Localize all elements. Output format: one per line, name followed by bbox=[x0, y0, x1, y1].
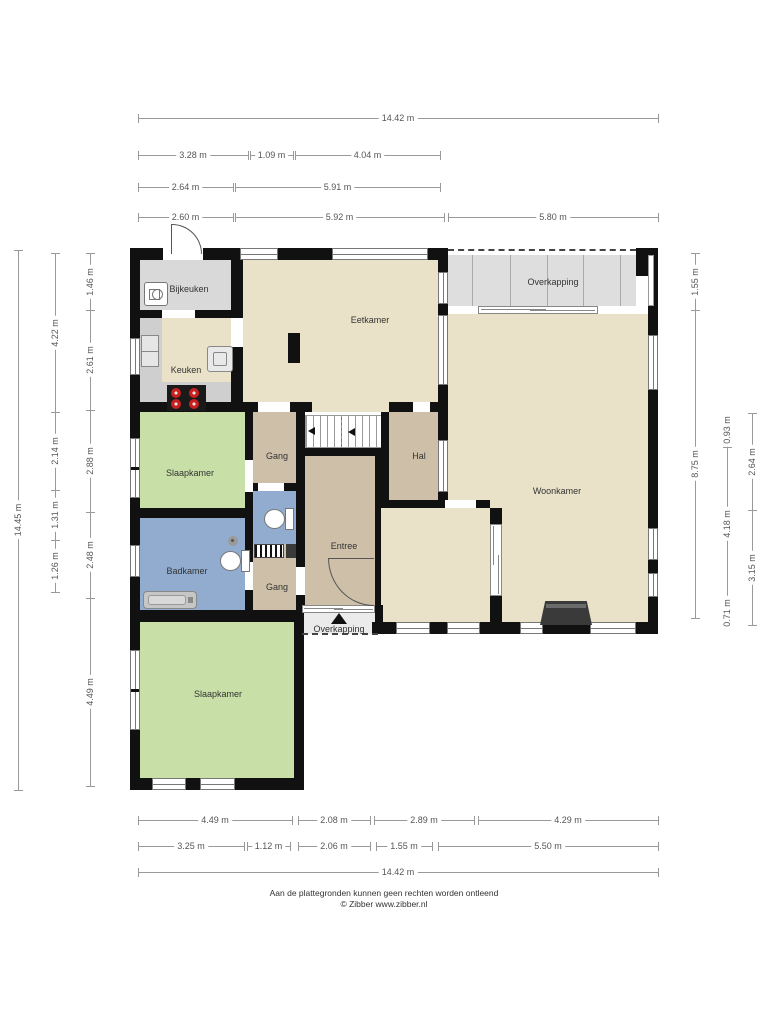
wall bbox=[381, 412, 389, 500]
washer-icon bbox=[144, 282, 168, 306]
dim-tick bbox=[14, 790, 23, 791]
dim-label: 4.22 m bbox=[50, 316, 60, 350]
dim-tick bbox=[298, 842, 299, 851]
dim-label: 1.31 m bbox=[50, 498, 60, 532]
overkapping-schuifpui bbox=[478, 306, 598, 314]
wall bbox=[294, 610, 304, 790]
stove-icon bbox=[167, 385, 206, 411]
room-label-bijkeuken: Bijkeuken bbox=[169, 284, 208, 294]
dim-label: 2.14 m bbox=[50, 434, 60, 468]
window bbox=[130, 338, 140, 375]
dim-label: 0.71 m bbox=[722, 596, 732, 630]
dim-tick bbox=[440, 183, 441, 192]
metersq-icon bbox=[286, 544, 296, 558]
dim-tick bbox=[233, 183, 234, 192]
tri-up-icon bbox=[331, 613, 347, 624]
leaf-icon bbox=[328, 558, 374, 559]
dim-tick bbox=[86, 410, 95, 411]
overkapping-line bbox=[583, 255, 584, 306]
dim-label: 3.25 m bbox=[174, 841, 208, 851]
wall bbox=[636, 248, 658, 276]
dim-tick bbox=[374, 816, 375, 825]
dim-tick bbox=[86, 310, 95, 311]
dim-label: 4.49 m bbox=[85, 675, 95, 709]
dim-tick bbox=[138, 842, 139, 851]
wall bbox=[375, 605, 383, 634]
blackbox-icon bbox=[288, 333, 300, 363]
window bbox=[648, 335, 658, 390]
dim-label: 5.91 m bbox=[321, 182, 355, 192]
dim-tick bbox=[658, 114, 659, 123]
overkapping-line bbox=[620, 255, 621, 306]
window bbox=[648, 528, 658, 560]
dim-label: 1.26 m bbox=[50, 549, 60, 583]
dim-label: 5.80 m bbox=[536, 212, 570, 222]
window bbox=[130, 545, 140, 577]
room-label-gang-onder: Gang bbox=[266, 582, 288, 592]
room-label-overkapping-boven: Overkapping bbox=[527, 277, 578, 287]
dim-tick bbox=[440, 151, 441, 160]
dim-tick bbox=[748, 510, 757, 511]
dim-label: 1.12 m bbox=[252, 841, 286, 851]
window bbox=[152, 778, 186, 790]
door-opening bbox=[413, 402, 430, 412]
window bbox=[590, 622, 636, 634]
dim-tick bbox=[444, 213, 445, 222]
dim-tick bbox=[748, 625, 757, 626]
dim-tick bbox=[370, 816, 371, 825]
dim-tick bbox=[292, 816, 293, 825]
dim-label: 14.42 m bbox=[379, 867, 418, 877]
dim-tick bbox=[235, 213, 236, 222]
dim-tick bbox=[370, 842, 371, 851]
dim-tick bbox=[723, 447, 732, 448]
dim-label: 5.50 m bbox=[531, 841, 565, 851]
room-label-slaapkamer-1: Slaapkamer bbox=[166, 468, 214, 478]
dim-tick bbox=[138, 213, 139, 222]
dim-tick bbox=[247, 842, 248, 851]
window bbox=[520, 622, 543, 634]
dim-tick bbox=[86, 512, 95, 513]
dim-label: 8.75 m bbox=[690, 447, 700, 481]
room-woonkamer-nis bbox=[381, 508, 490, 624]
window bbox=[648, 573, 658, 597]
nis-schuifdeur bbox=[490, 524, 502, 596]
dim-tick bbox=[293, 151, 294, 160]
dim-tick bbox=[438, 842, 439, 851]
dim-tick bbox=[138, 114, 139, 123]
room-gang-boven bbox=[253, 412, 296, 483]
dim-tick bbox=[691, 310, 700, 311]
door-opening bbox=[258, 402, 290, 412]
room-label-eetkamer: Eetkamer bbox=[351, 315, 390, 325]
dim-tick bbox=[478, 816, 479, 825]
dim-tick bbox=[658, 842, 659, 851]
dim-tick bbox=[233, 213, 234, 222]
dim-tick bbox=[748, 413, 757, 414]
window bbox=[200, 778, 235, 790]
fridge-icon bbox=[141, 335, 159, 367]
dim-tick bbox=[295, 151, 296, 160]
dim-tick bbox=[138, 868, 139, 877]
dim-tick bbox=[250, 151, 251, 160]
tri-left-icon bbox=[308, 427, 315, 435]
dim-tick bbox=[658, 213, 659, 222]
dim-label: 0.93 m bbox=[722, 413, 732, 447]
dim-tick bbox=[432, 842, 433, 851]
dim-tick bbox=[138, 183, 139, 192]
dim-label: 2.64 m bbox=[169, 182, 203, 192]
dim-tick bbox=[248, 151, 249, 160]
window bbox=[447, 622, 480, 634]
meter-icon bbox=[254, 544, 284, 558]
dim-tick bbox=[51, 490, 60, 491]
dim-tick bbox=[51, 592, 60, 593]
room-eetkamer bbox=[243, 260, 438, 412]
room-label-slaapkamer-2: Slaapkamer bbox=[194, 689, 242, 699]
dim-label: 1.46 m bbox=[85, 265, 95, 299]
sinkunit-icon bbox=[207, 346, 233, 372]
overkapping-line bbox=[472, 255, 473, 306]
wall bbox=[290, 402, 312, 412]
footer-copyright: © Zibber www.zibber.nl bbox=[0, 899, 768, 909]
wall bbox=[490, 596, 502, 624]
dim-tick bbox=[244, 842, 245, 851]
entree-pui bbox=[302, 605, 375, 613]
leaf-icon bbox=[171, 224, 172, 254]
wall bbox=[490, 508, 502, 524]
dim-tick bbox=[86, 598, 95, 599]
room-label-keuken: Keuken bbox=[171, 365, 202, 375]
dim-tick bbox=[691, 618, 700, 619]
room-hal bbox=[381, 412, 438, 500]
dim-tick bbox=[376, 842, 377, 851]
floorplan-page: BijkeukenKeukenEetkamerOverkappingWoonka… bbox=[0, 0, 768, 1024]
window bbox=[130, 650, 140, 730]
dim-label: 3.28 m bbox=[176, 150, 210, 160]
stairdash-icon bbox=[341, 417, 342, 447]
room-label-hal: Hal bbox=[412, 451, 426, 461]
door-opening bbox=[258, 483, 284, 491]
dim-label: 4.49 m bbox=[198, 815, 232, 825]
room-slaapkamer-2 bbox=[140, 622, 294, 778]
room-label-overkapping-onder: Overkapping bbox=[313, 624, 364, 634]
dim-label: 1.55 m bbox=[690, 265, 700, 299]
dim-label: 2.88 m bbox=[85, 444, 95, 478]
dim-label: 5.92 m bbox=[323, 212, 357, 222]
dim-tick bbox=[658, 816, 659, 825]
stairs-icon bbox=[305, 415, 389, 448]
overkapping-line bbox=[510, 255, 511, 306]
footer-disclaimer: Aan de plattegronden kunnen geen rechten… bbox=[0, 888, 768, 898]
window bbox=[332, 248, 428, 260]
dim-label: 1.55 m bbox=[387, 841, 421, 851]
dim-tick bbox=[86, 253, 95, 254]
dim-tick bbox=[14, 250, 23, 251]
door-opening bbox=[245, 460, 253, 492]
dim-tick bbox=[235, 183, 236, 192]
dim-tick bbox=[448, 213, 449, 222]
tri-left-icon bbox=[348, 428, 355, 436]
dim-label: 2.60 m bbox=[169, 212, 203, 222]
dim-tick bbox=[474, 816, 475, 825]
dim-tick bbox=[298, 816, 299, 825]
dim-tick bbox=[691, 253, 700, 254]
dim-label: 2.06 m bbox=[317, 841, 351, 851]
toilet-icon bbox=[218, 548, 250, 574]
tub-icon bbox=[143, 591, 197, 609]
dim-label: 1.09 m bbox=[255, 150, 289, 160]
dim-label: 4.04 m bbox=[351, 150, 385, 160]
window bbox=[438, 315, 448, 385]
dim-label: 14.42 m bbox=[379, 113, 418, 123]
door-opening bbox=[231, 318, 243, 347]
toilet-icon bbox=[262, 506, 294, 532]
window bbox=[438, 440, 448, 492]
room-label-entree: Entree bbox=[331, 541, 358, 551]
window bbox=[396, 622, 430, 634]
dim-label: 2.89 m bbox=[407, 815, 441, 825]
door-opening bbox=[445, 500, 476, 508]
open-edge bbox=[648, 255, 654, 306]
wall bbox=[130, 610, 304, 622]
dim-tick bbox=[51, 540, 60, 541]
dim-tick bbox=[51, 412, 60, 413]
dim-tick bbox=[290, 842, 291, 851]
room-label-gang-boven: Gang bbox=[266, 451, 288, 461]
room-label-badkamer: Badkamer bbox=[166, 566, 207, 576]
open-boundary bbox=[448, 249, 636, 251]
door-opening bbox=[296, 567, 305, 595]
window bbox=[438, 272, 448, 304]
dim-tick bbox=[86, 786, 95, 787]
dim-label: 2.64 m bbox=[747, 445, 757, 479]
room-slaapkamer-1 bbox=[140, 412, 245, 508]
dim-label: 2.08 m bbox=[317, 815, 351, 825]
dim-label: 2.61 m bbox=[85, 343, 95, 377]
dim-tick bbox=[658, 868, 659, 877]
dim-tick bbox=[138, 151, 139, 160]
wall bbox=[243, 402, 258, 412]
dim-tick bbox=[138, 816, 139, 825]
arcTL-icon bbox=[172, 224, 202, 254]
room-label-woonkamer: Woonkamer bbox=[533, 486, 581, 496]
dim-label: 4.29 m bbox=[551, 815, 585, 825]
dim-tick bbox=[51, 253, 60, 254]
door-opening bbox=[162, 310, 195, 318]
dim-label: 3.15 m bbox=[747, 551, 757, 585]
dim-label: 2.48 m bbox=[85, 538, 95, 572]
dim-label: 4.18 m bbox=[722, 507, 732, 541]
window bbox=[240, 248, 278, 260]
fireplace-icon bbox=[540, 601, 592, 625]
dim-label: 14.45 m bbox=[13, 501, 23, 540]
shower-icon bbox=[228, 536, 238, 546]
window bbox=[130, 438, 140, 498]
wall bbox=[130, 508, 253, 518]
